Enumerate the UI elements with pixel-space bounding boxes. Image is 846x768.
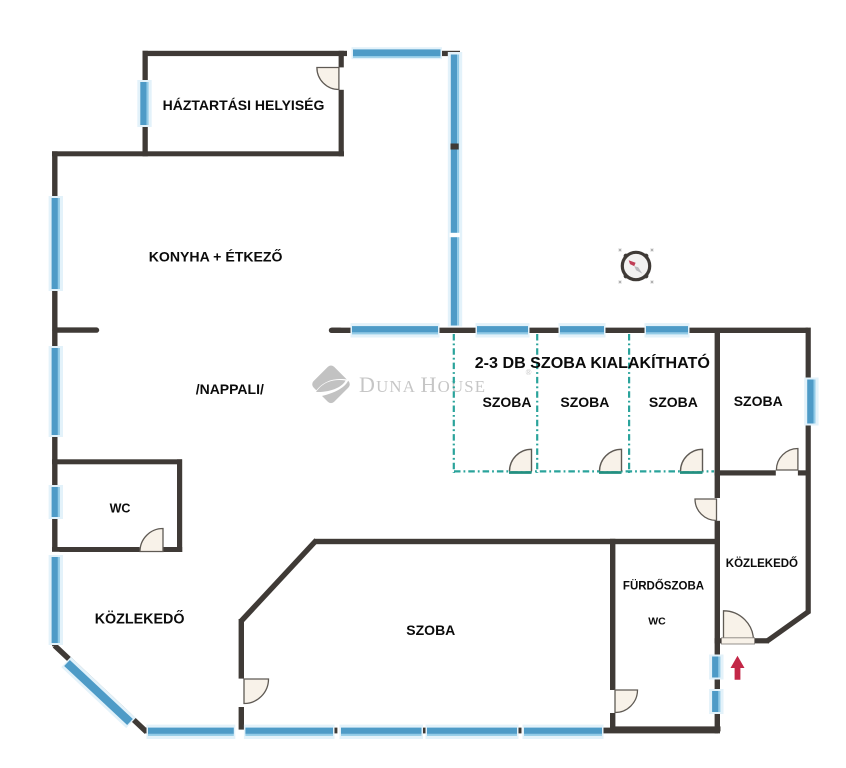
svg-text:KÖZLEKEDŐ: KÖZLEKEDŐ	[95, 609, 185, 627]
svg-text:HÁZTARTÁSI HELYISÉG: HÁZTARTÁSI HELYISÉG	[163, 97, 325, 113]
svg-text:SZOBA: SZOBA	[406, 622, 455, 638]
svg-text:KONYHA + ÉTKEZŐ: KONYHA + ÉTKEZŐ	[149, 248, 283, 265]
svg-text:WC: WC	[110, 502, 131, 516]
svg-text:KÖZLEKEDŐ: KÖZLEKEDŐ	[726, 557, 798, 570]
svg-text:FÜRDŐSZOBA: FÜRDŐSZOBA	[623, 580, 704, 593]
svg-text:SZOBA: SZOBA	[649, 394, 698, 410]
svg-text:/NAPPALI/: /NAPPALI/	[196, 381, 264, 397]
svg-text:SZOBA: SZOBA	[483, 394, 532, 410]
svg-text:SZOBA: SZOBA	[734, 393, 783, 409]
svg-text:WC: WC	[648, 615, 666, 627]
svg-text:2-3 DB SZOBA KIALAKÍTHATÓ: 2-3 DB SZOBA KIALAKÍTHATÓ	[475, 353, 710, 372]
svg-text:SZOBA: SZOBA	[560, 394, 609, 410]
